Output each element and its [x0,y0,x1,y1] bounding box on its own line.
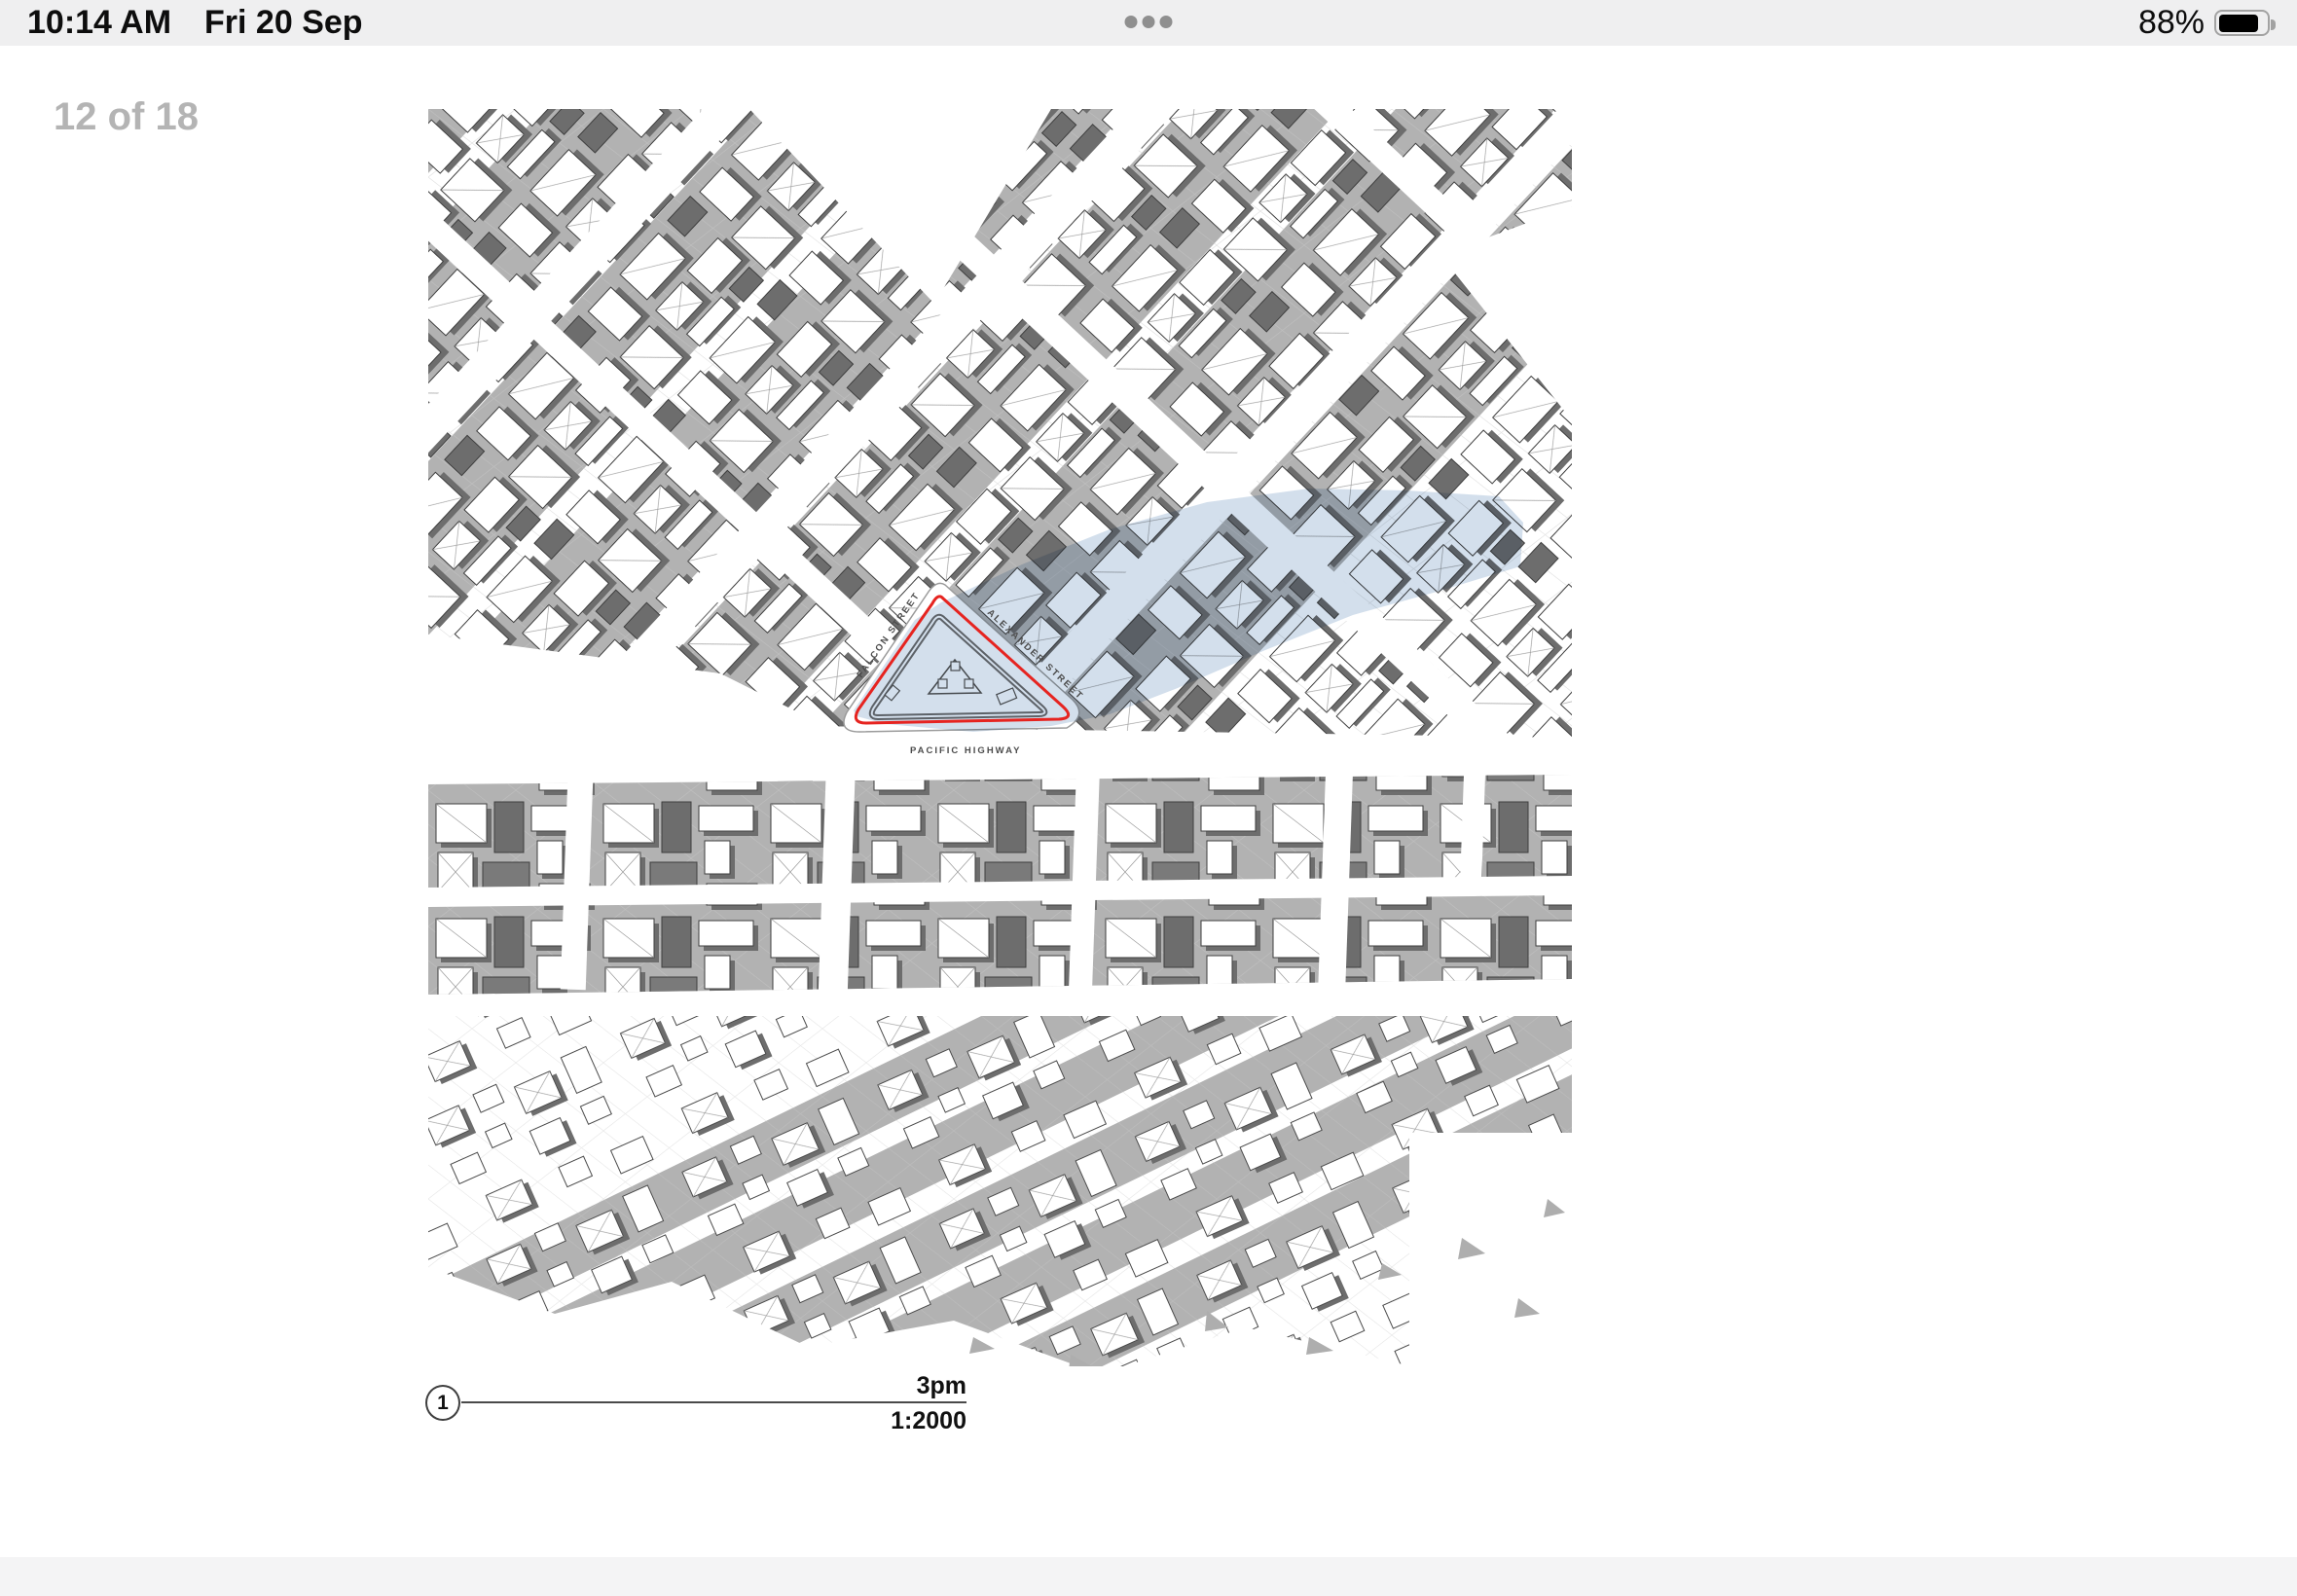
drawing-number-badge: 1 [425,1385,460,1421]
page-indicator: 12 of 18 [54,95,199,139]
battery-icon [2214,10,2270,36]
middle-commercial-band [428,742,1572,1021]
site-plan-map[interactable]: FALCON STREET ALEXANDER STREET PACIFIC H… [428,109,1572,1366]
multitasking-dots-icon[interactable] [1125,16,1173,28]
shadow-time-label: 3pm [798,1372,966,1400]
bottom-bar [0,1557,2297,1596]
status-bar: 10:14 AM Fri 20 Sep 88% [0,0,2297,46]
shadow-study-drawing: FALCON STREET ALEXANDER STREET PACIFIC H… [428,109,1572,1366]
battery-percent: 88% [2138,4,2205,42]
ipad-screen: 10:14 AM Fri 20 Sep 88% 12 of 18 [0,0,2297,1596]
annotation-rule-line [461,1401,966,1403]
pacific-highway-label: PACIFIC HIGHWAY [910,745,1021,756]
status-time: 10:14 AM [27,4,171,42]
status-date: Fri 20 Sep [204,4,363,42]
drawing-scale-label: 1:2000 [798,1407,966,1435]
